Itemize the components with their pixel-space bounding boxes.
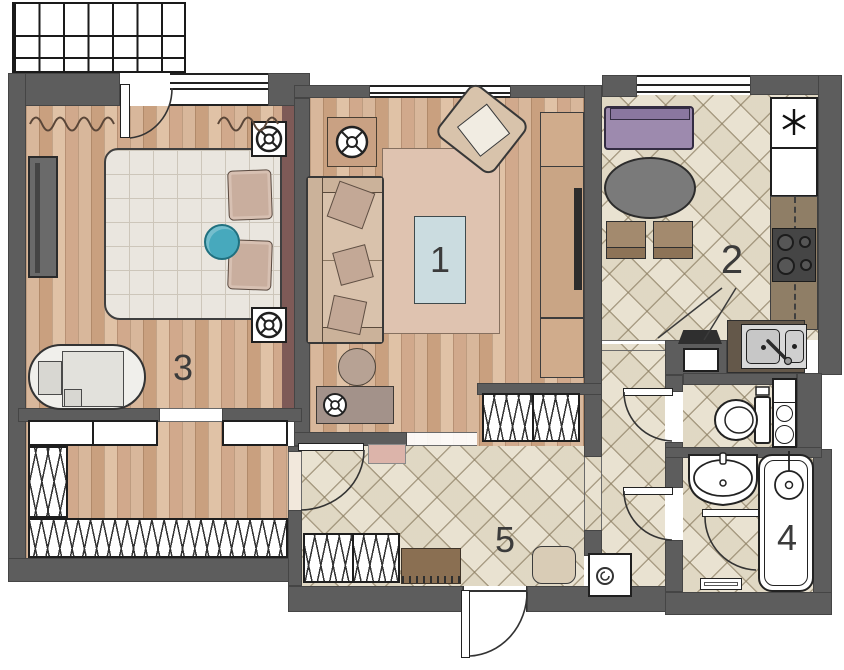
desk-chair [38, 361, 62, 395]
washer-drum-icon [590, 555, 630, 595]
basket [775, 425, 794, 444]
ceiling-speaker-icon [253, 123, 285, 155]
corridor-floor [602, 344, 665, 586]
balcony-rail-line [14, 35, 184, 37]
pink-mat [368, 444, 406, 464]
kitchen-bench [604, 106, 694, 150]
balcony-rail-line [14, 57, 184, 59]
armchair-cushion [457, 104, 510, 157]
dressing-door-leaf [298, 443, 364, 451]
bathroom-corridor-door-leaf [623, 487, 673, 495]
teal-round-cushion [204, 224, 240, 260]
bath-mat [700, 578, 742, 590]
burner [777, 234, 794, 251]
round-tray-icon [333, 123, 371, 161]
hall-closet-bottom [303, 533, 400, 583]
floor-plan: 1 [0, 0, 844, 670]
pillow [227, 169, 273, 221]
room-label-bathroom: 4 [769, 514, 805, 562]
throw-pillow [332, 244, 374, 286]
burner [800, 259, 812, 271]
speaker-icon [321, 391, 349, 419]
hanging-rail-bottom [28, 518, 288, 558]
entrance-opening [463, 586, 527, 612]
wall-top-living-left [294, 85, 370, 98]
dressing-shelf-right [222, 420, 288, 446]
sink-faucet [720, 453, 726, 464]
wall-bottom-hall-left [288, 586, 463, 612]
wall-living-kitchen [584, 85, 602, 457]
entry-pouf [532, 546, 576, 584]
throw-pillow [327, 295, 367, 335]
bedroom-window [170, 73, 268, 106]
wall-right-bathroom [813, 449, 832, 615]
dining-chair [606, 221, 646, 259]
room-label-kitchen: 2 [710, 234, 754, 286]
basket [776, 405, 793, 422]
toilet-bowl [715, 400, 757, 440]
wc-door-leaf [623, 388, 673, 396]
bedroom-dressing-opening [160, 408, 222, 422]
corridor-hall-opening [584, 457, 602, 530]
sofa-backrest [308, 178, 323, 342]
kitchen-sink [741, 324, 807, 369]
media-cabinet-bottom [540, 318, 584, 378]
hall-dressing-opening [288, 452, 302, 510]
wall-bottom-dressing [8, 558, 302, 582]
bathroom-sink [686, 452, 760, 508]
wall-right-wc [797, 373, 822, 449]
kitchen-bench-backrest [610, 108, 690, 120]
sink-basin-large [746, 329, 780, 364]
doormat-fringe [402, 576, 460, 583]
kitchen-wall-tv [678, 330, 722, 344]
wall-tv [574, 188, 582, 290]
doormat [401, 548, 461, 584]
dressing-shelf-left [28, 420, 158, 446]
balcony [12, 2, 186, 73]
dining-chair [653, 221, 693, 259]
burner [799, 236, 811, 248]
side-table [327, 117, 377, 167]
round-pouf [338, 348, 376, 386]
wall-corridor-right-3 [665, 540, 683, 592]
ceiling-speaker-icon [253, 309, 285, 341]
sink-basin-small [785, 330, 804, 363]
washing-machine [588, 553, 632, 597]
wardrobe [28, 156, 58, 278]
snowflake-fridge-icon [779, 107, 809, 137]
sofa [306, 176, 384, 344]
tv-stand [316, 386, 394, 424]
room-label-living: 1 [430, 239, 450, 281]
toilet [710, 384, 774, 448]
balcony-door-leaf [120, 84, 130, 138]
media-cabinet-top [540, 112, 584, 168]
living-hall-opening [407, 432, 477, 446]
desk-stool [64, 389, 82, 407]
wall-bottom-bathroom [665, 592, 832, 615]
wall-top-kitchen-left [602, 75, 637, 97]
coffee-table: 1 [414, 216, 466, 304]
burner [777, 257, 795, 275]
kitchen-corridor-threshold [602, 340, 665, 351]
ceiling-speaker [251, 121, 287, 157]
flush-valve [756, 387, 769, 395]
wall-hall-dressing-bottom [288, 510, 302, 586]
bathroom-door-leaf [702, 509, 762, 517]
cooktop [772, 228, 816, 282]
ceiling-speaker [251, 307, 287, 343]
hanging-rail-left [28, 446, 68, 518]
hall-closet-top [482, 393, 580, 442]
wall-right-kitchen [818, 75, 842, 375]
vent-shaft [683, 348, 719, 372]
wc-shelf-unit [772, 378, 797, 448]
fridge [770, 97, 818, 197]
room-label-hallway: 5 [486, 516, 524, 564]
wall-left-exterior [8, 73, 26, 582]
dining-table [604, 157, 696, 219]
kitchen-window [637, 75, 750, 93]
entrance-door-leaf [461, 590, 470, 658]
room-label-bedroom: 3 [164, 344, 202, 392]
